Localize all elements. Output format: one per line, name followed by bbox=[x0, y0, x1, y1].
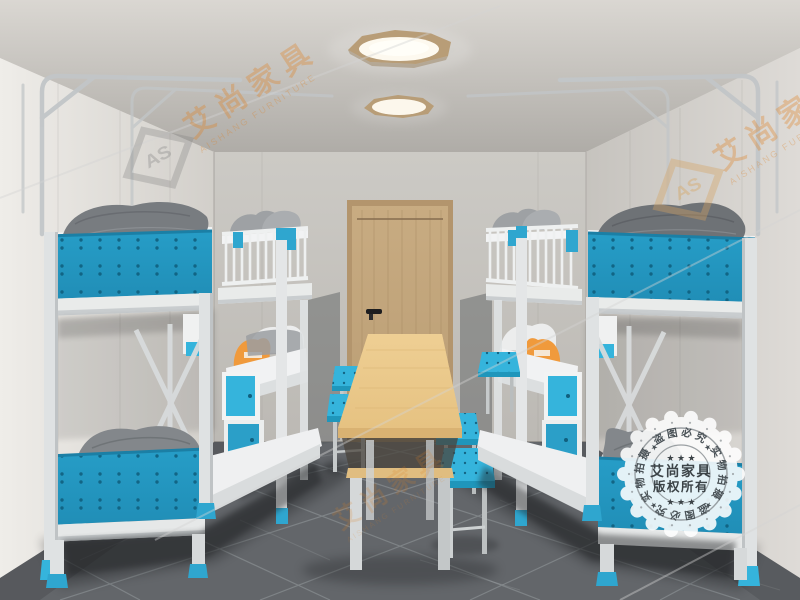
ceiling-light-rear bbox=[351, 92, 447, 124]
svg-text:★ ★ ★: ★ ★ ★ bbox=[666, 453, 695, 463]
svg-text:★ ★ ★: ★ ★ ★ bbox=[666, 497, 695, 507]
ceiling-light-front bbox=[328, 26, 472, 74]
dormitory-room-render: 盗图必究 实物拍摄 盗图必究 实物拍摄 ★ ★ ★ ★ ★ ★ ★ 艾尚家具 版… bbox=[0, 0, 800, 600]
door-handle bbox=[366, 309, 382, 314]
svg-text:版权所有: 版权所有 bbox=[653, 479, 709, 494]
svg-text:艾尚家具: 艾尚家具 bbox=[650, 463, 712, 479]
room-3d-render: 盗图必究 实物拍摄 盗图必究 实物拍摄 ★ ★ ★ ★ ★ ★ ★ 艾尚家具 版… bbox=[0, 0, 800, 600]
